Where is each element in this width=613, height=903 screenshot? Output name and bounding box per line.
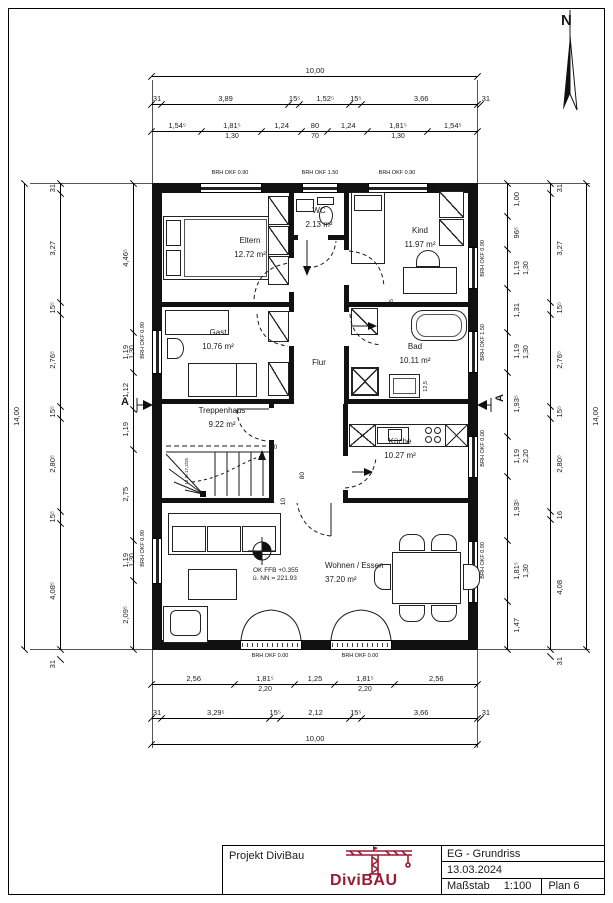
dim-segment: 2,56 (152, 672, 235, 684)
dim-segment: 3,27 (46, 193, 60, 302)
sofa-cushion (172, 526, 206, 552)
dim-chain: 31 3,27 15⁵ 2,76⁵ 15⁵ 2,80⁵ 15⁵ 4,08⁵ 31 (46, 183, 61, 650)
room-label-kueche: Küche10.27 m² (355, 437, 445, 460)
dim-segment: 3,89 (162, 92, 289, 104)
dim-chain: 31 3,27 15⁵ 2,76⁵ 15⁵ 2,80⁵ 16 4,08 31 (550, 183, 568, 650)
dim-segment: 31 (46, 659, 60, 669)
pillow (354, 195, 382, 211)
dim-chain: 4,46⁵ 1,191,30 1,12 1,19 2,75 1,191,30 2… (119, 183, 134, 650)
shower (351, 367, 379, 396)
small-dim: 12,5 (424, 381, 430, 392)
wardrobe (439, 191, 464, 218)
dim-segment: 31 (481, 92, 491, 104)
dim-segment: 31 (551, 656, 568, 666)
bed-divider (236, 364, 237, 396)
toilet-cistern (317, 197, 334, 205)
small-dim: 10 (281, 498, 288, 505)
extension-line (478, 183, 590, 184)
dim-segment: 1,191,30 (119, 332, 133, 372)
dim-segment: 1,93⁵ (508, 372, 525, 437)
bathtub-inner (416, 314, 462, 337)
interior-wall (344, 399, 478, 404)
interior-wall (343, 498, 478, 503)
dim-segment: 3,66 (362, 706, 481, 718)
room-label-eltern: Eltern12.72 m² (205, 236, 295, 259)
dim-segment: 4,46⁵ (119, 183, 133, 332)
north-letter: N (561, 12, 572, 29)
drawing-title: EG - Grundriss (442, 846, 604, 862)
dim-segment: 1,25 (295, 672, 336, 684)
dim-segment: 3,66 (362, 92, 481, 104)
coffee-table (188, 569, 237, 600)
dining-chair (463, 564, 480, 590)
dim-segment: 2,80⁵ (551, 418, 568, 512)
floor-plan-sheet: Eltern12.72 m² WC2.13 m² Kind11.97 m² Ga… (0, 0, 613, 903)
dim-segment: 1,93⁵ (508, 476, 525, 541)
washer-inner (393, 378, 416, 394)
window-bad (468, 331, 478, 373)
dim-segment: 1,191,30 (119, 540, 133, 580)
window-gast (152, 330, 162, 374)
brh-label: BRH OKF 0.90 (481, 542, 487, 579)
project-name: Projekt DiviBau (229, 850, 304, 862)
dim-segment: 15⁵ (551, 302, 568, 313)
dim-segment: 2,09⁵ (119, 580, 133, 650)
dim-chain: 14,00 (586, 183, 604, 650)
dim-segment: 31 (551, 183, 568, 193)
dim-segment: 1,191,30 (508, 249, 525, 289)
brh-label: BRH OKF 1.50 (285, 170, 355, 176)
dim-segment: 1,54⁵ (428, 119, 478, 131)
dim-segment: 31 (481, 706, 491, 718)
dim-segment: 15⁵ (551, 406, 568, 417)
small-dim: 80 (300, 472, 307, 479)
brh-label: BRH OKF 0.90 (141, 322, 147, 359)
dim-segment: 15⁵ (350, 92, 361, 104)
dim-segment: 1,81⁵1,30 (368, 119, 427, 131)
door-opening (344, 312, 349, 346)
dim-chain: 1,00 96⁵ 1,191,30 1,31 1,191,30 1,93⁵ 1,… (507, 183, 525, 650)
dim-segment: 1,81⁵1,30 (202, 119, 261, 131)
dim-segment: 3,27 (551, 193, 568, 302)
door-opening (269, 408, 274, 440)
dim-segment: 1,24 (328, 119, 368, 131)
room-label-treppenhaus: Treppenhaus9.22 m² (177, 406, 267, 429)
dim-segment: 15⁵ (289, 92, 300, 104)
section-letter-a-right: A (495, 394, 506, 402)
dim-segment: 1,81⁵2,20 (235, 672, 294, 684)
armchair-seat (170, 610, 201, 636)
window-kind-right (468, 247, 478, 289)
burner (425, 427, 432, 434)
brh-label: BRH OKF 0.90 (362, 170, 432, 176)
dim-segment: 1,19 (119, 409, 133, 449)
scale-label: Maßstab (447, 880, 490, 892)
burner (434, 427, 441, 434)
brh-label: BRH OKF 0.90 (481, 240, 487, 277)
dim-segment: 1,00 (508, 183, 525, 216)
level-marker-text: OK FFB +0.355ü. NN = 221.93 (253, 567, 323, 583)
dim-segment: 16 (551, 511, 568, 519)
dim-segment: 1,191,30 (508, 332, 525, 372)
corner-cabinet (445, 424, 468, 447)
dim-segment: 1,81⁵1,30 (508, 540, 525, 601)
dim-segment: 10,00 (152, 64, 478, 76)
wardrobe (268, 196, 289, 225)
dim-chain: 31 3,89 15⁵ 1,52⁵ 15⁵ 3,66 31 (152, 92, 478, 105)
small-dim: 50 (270, 444, 277, 451)
wardrobe (268, 256, 289, 285)
dim-segment: 31 (152, 706, 162, 718)
brh-label: BRH OKF 0.90 (141, 530, 147, 567)
wardrobe (268, 362, 289, 396)
room-label-flur: Flur (294, 358, 344, 368)
dim-segment: 2,80⁵ (46, 418, 60, 512)
interior-wall (344, 302, 478, 307)
sofa-cushion (242, 526, 276, 552)
room-label-wc: WC2.13 m² (294, 206, 344, 229)
window-wc (302, 183, 338, 193)
dim-chain: 2,56 1,81⁵2,20 1,25 1,81⁵2,20 2,56 (152, 672, 478, 685)
window-eltern (200, 183, 262, 193)
dim-chain: 31 3,29⁵ 15⁵ 2,12 15⁵ 3,66 31 (152, 706, 478, 719)
pillow (166, 220, 181, 246)
dining-chair (399, 605, 425, 622)
dim-segment: 4,08 (551, 519, 568, 655)
chair (416, 250, 440, 267)
dim-segment: 1,31 (508, 288, 525, 332)
plan-number: Plan 6 (548, 880, 579, 892)
window-wohnen-left (152, 538, 162, 584)
dim-segment: 1,81⁵2,20 (335, 672, 394, 684)
dim-segment: 96⁵ (508, 216, 525, 248)
brh-label: BRH OKF 0.90 (195, 170, 265, 176)
pillow (166, 250, 181, 276)
dim-segment: 1,47 (508, 601, 525, 650)
dim-segment: 2,76⁵ (46, 314, 60, 406)
room-label-bad: Bad10.11 m² (370, 342, 460, 365)
room-label-wohnen: Wohnen / Essen37.20 m² (325, 561, 415, 584)
dim-segment: 2,75 (119, 449, 133, 541)
wardrobe (268, 311, 289, 342)
small-dim: 65 (390, 299, 396, 305)
title-block: Projekt DiviBau EG - Grundriss 13.03.202… (222, 845, 604, 894)
room-label-gast: Gast10.76 m² (173, 328, 263, 351)
interior-wall (152, 498, 274, 503)
dim-segment: 10,00 (152, 732, 478, 744)
dim-chain: 14,00 (10, 183, 25, 650)
bath-shelf (351, 308, 378, 335)
brh-label: BRH OKF 1.50 (481, 324, 487, 361)
dining-chair (431, 605, 457, 622)
sofa-cushion (207, 526, 241, 552)
dim-segment: 8070 (302, 119, 328, 131)
dim-segment: 2,12 (281, 706, 350, 718)
dim-segment: 1,54⁵ (152, 119, 202, 131)
dim-segment: 2,76⁵ (551, 314, 568, 406)
cell-divider (541, 879, 542, 894)
dim-segment: 1,24 (262, 119, 302, 131)
dim-segment: 1,12 (119, 372, 133, 409)
dim-segment: 31 (152, 92, 162, 104)
desk (403, 267, 457, 294)
interior-wall (344, 193, 349, 302)
dim-chain: 10,00 (152, 732, 478, 745)
dim-chain: 10,00 (152, 64, 478, 77)
dining-chair (399, 534, 425, 551)
drawing-date: 13.03.2024 (442, 862, 604, 878)
window-kueche (468, 436, 478, 478)
scale-row: Maßstab 1:100 Plan 6 (442, 879, 604, 894)
dining-chair (431, 534, 457, 551)
dim-segment: 14,00 (10, 183, 24, 650)
terrace-door-right (330, 640, 392, 650)
terrace-door-left (240, 640, 302, 650)
dim-segment: 15⁵ (270, 706, 281, 718)
dim-segment: 3,29⁵ (162, 706, 269, 718)
logo-wordmark: DiviBAU (330, 872, 398, 890)
brh-label: BRH OKF 0.00 (325, 653, 395, 659)
dim-segment: 15⁵ (350, 706, 361, 718)
door-opening (289, 312, 294, 346)
dim-segment: 1,192,20 (508, 436, 525, 476)
interior-wall (152, 302, 294, 307)
dim-segment: 14,00 (587, 183, 604, 650)
dim-segment: 4,08⁵ (46, 523, 60, 659)
door-opening (298, 235, 328, 240)
extension-line (478, 649, 590, 650)
brh-label: BRH OKF 0.00 (235, 653, 305, 659)
dim-segment: 2,56 (395, 672, 478, 684)
door-opening (289, 258, 294, 292)
dim-segment: 1,52⁵ (300, 92, 350, 104)
gast-bed (188, 363, 257, 397)
scale-value: 1:100 (504, 880, 532, 892)
brh-label: BRH OKF 0.00 (481, 430, 487, 467)
room-label-kind: Kind11.97 m² (375, 226, 465, 249)
stairs-note: 18 St 17,2/25 (185, 458, 199, 485)
dim-chain: 1,54⁵ 1,81⁵1,30 1,24 8070 1,24 1,81⁵1,30… (152, 119, 478, 132)
door-opening (344, 250, 349, 285)
door-opening (343, 456, 348, 490)
